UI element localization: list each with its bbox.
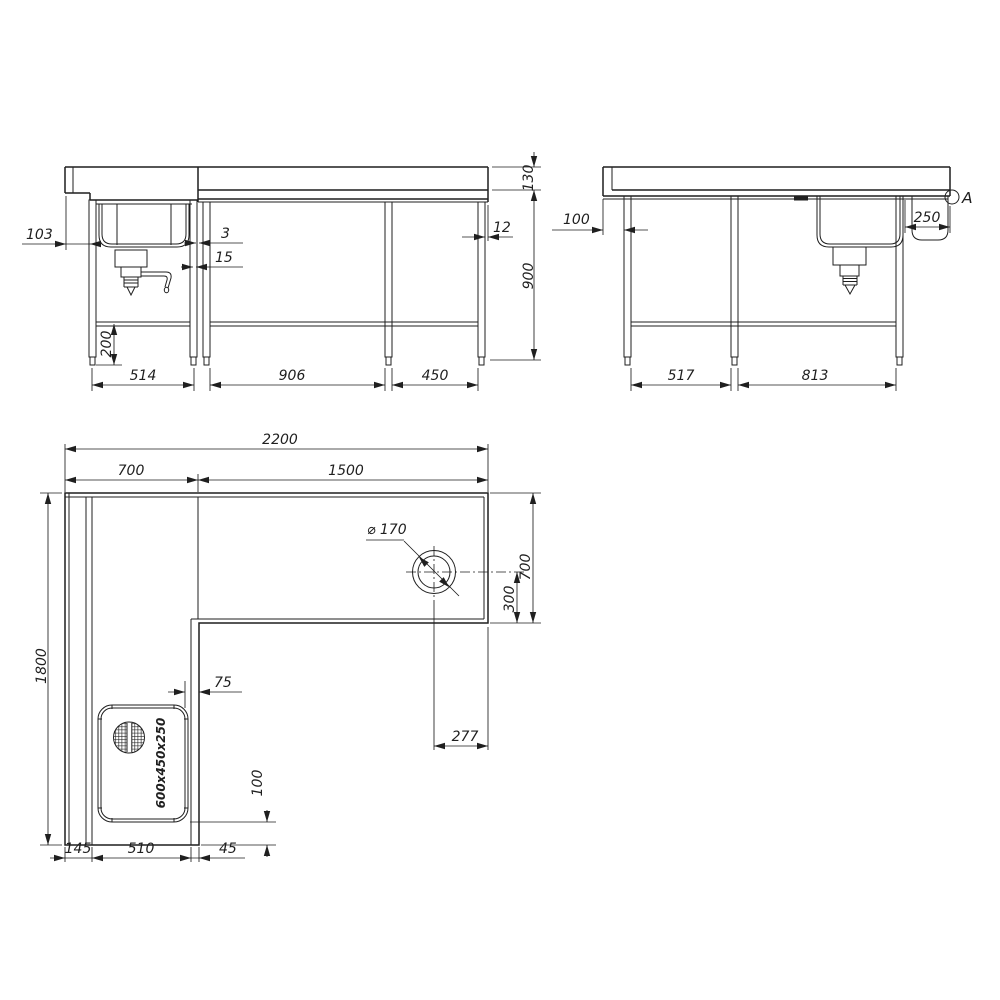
dim-hole-diameter: ⌀ 170	[367, 522, 407, 538]
dim-section-right: 1500	[328, 463, 364, 479]
dim-sink-bay: 510	[128, 841, 155, 857]
dim-shelf-height: 200	[99, 331, 115, 358]
sink-size-label: 600x450x250	[154, 718, 168, 809]
dim-backsplash-height: 130	[521, 165, 537, 192]
dim-end-overhang: 100	[563, 212, 590, 228]
technical-drawing: 103 3 15 12 130 900 200 514 906 450	[0, 0, 1000, 1000]
dim-back-strip: 145	[65, 841, 92, 857]
dim-front-strip: 45	[219, 841, 237, 857]
dim-bay-right: 450	[422, 368, 449, 384]
dim-leg-gap: 15	[215, 250, 233, 266]
dim-hole-offset-x: 277	[452, 729, 479, 745]
dim-edge-offset: 12	[493, 220, 511, 236]
dim-bay-left: 514	[130, 368, 157, 384]
dim-sink-offset: 250	[914, 210, 941, 226]
dim-section-left: 700	[118, 463, 145, 479]
dim-sink-edge-gap: 75	[214, 675, 232, 691]
dim-top-gap: 3	[221, 226, 230, 242]
dim-side-bay-left: 517	[668, 368, 695, 384]
drawing-page: 103 3 15 12 130 900 200 514 906 450	[0, 0, 1000, 1000]
dim-sink-bottom-gap: 100	[250, 770, 266, 797]
dim-working-height: 900	[521, 263, 537, 290]
mounting-clamp	[794, 197, 808, 201]
dim-total-length: 2200	[262, 432, 298, 448]
dim-depth-total: 1800	[34, 648, 50, 684]
dim-bay-center: 906	[279, 368, 306, 384]
detail-marker-label: A	[961, 189, 973, 207]
dim-side-bay-right: 813	[802, 368, 829, 384]
dim-left-overhang: 103	[26, 227, 53, 243]
dim-hole-offset-y: 300	[502, 586, 518, 613]
dim-depth-right: 700	[518, 554, 534, 581]
